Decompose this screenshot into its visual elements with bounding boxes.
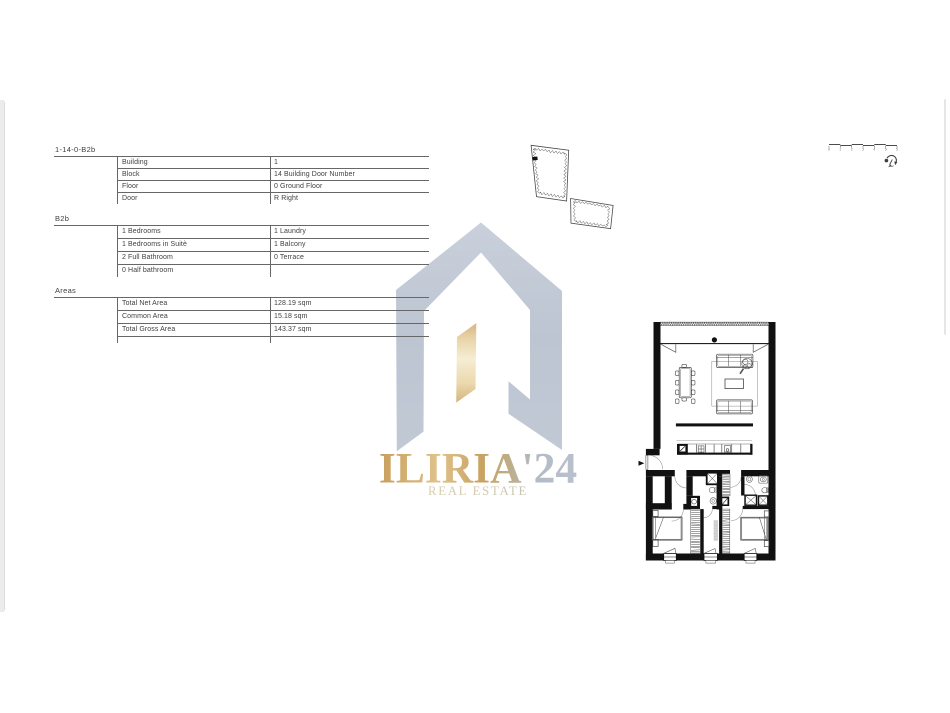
svg-text:1: 1: [839, 148, 841, 152]
svg-text:5: 5: [896, 148, 898, 152]
svg-text:0: 0: [828, 148, 830, 152]
svg-text:5: 5: [885, 148, 887, 152]
svg-text:4: 4: [873, 148, 875, 152]
svg-text:3: 3: [862, 148, 864, 152]
svg-text:2: 2: [851, 148, 853, 152]
